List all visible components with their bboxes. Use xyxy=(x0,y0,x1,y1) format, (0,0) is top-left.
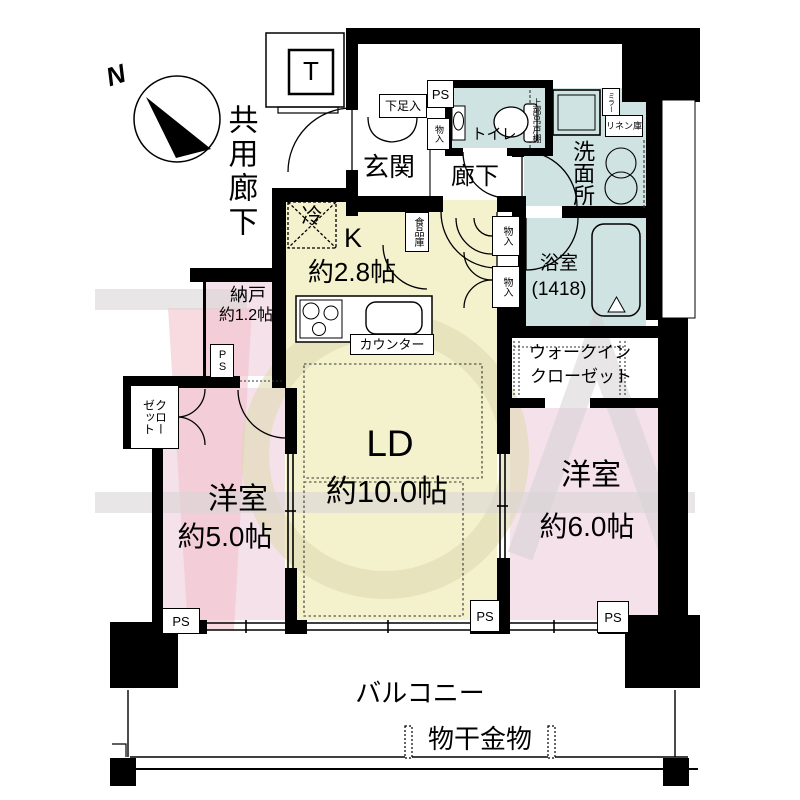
counter-label-box: カウンター xyxy=(350,334,434,355)
bedroom-west-size: 約5.0帖 xyxy=(164,522,286,551)
kitchen-storage-upper: 物入 xyxy=(492,216,520,256)
mirror-cabinet-label: 上部三面鏡収納 xyxy=(647,137,657,213)
entrance-door-arc xyxy=(288,108,352,172)
pipe-space-living: PS xyxy=(470,600,500,632)
washroom-door-arc xyxy=(522,151,577,206)
fridge-label: 冷 xyxy=(293,206,331,228)
wall-bottom-right-block xyxy=(625,615,700,688)
hall-kitchen-door-arc xyxy=(441,212,497,268)
entrance-label: 玄関 xyxy=(356,154,422,181)
bedroom-west-label: 洋室 xyxy=(194,484,282,516)
kitchen-storage-door xyxy=(456,218,492,254)
living-size: 約10.0帖 xyxy=(294,476,480,509)
drying-hardware-label: 物干金物 xyxy=(414,726,546,753)
shoe-box: 下足入 xyxy=(379,94,427,118)
kitchen-storage-door xyxy=(464,280,492,308)
closet-box: クロー ゼット xyxy=(130,385,179,449)
bedroom-east-label: 洋室 xyxy=(546,460,636,492)
storage-room-label: 納戸 xyxy=(220,286,276,305)
exterior-void-strip xyxy=(662,100,695,318)
kitchen-storage-door xyxy=(464,252,492,280)
shoe-cabinet-door xyxy=(392,117,417,142)
wic-label-line1: ウォークイン xyxy=(524,344,636,362)
hall-storage-box: 物入 xyxy=(427,118,450,150)
stove xyxy=(300,300,342,338)
mirror-box: ミラー xyxy=(602,88,620,116)
compass xyxy=(134,76,220,162)
pantry-box: 食品庫 xyxy=(405,212,429,252)
toilet-upper-cabinet-label: 上部吊戸棚 xyxy=(531,92,540,148)
pipe-space-bedroom-east: PS xyxy=(597,601,629,633)
toilet-label: トイレ xyxy=(466,127,522,143)
kitchen-storage-lower: 物入 xyxy=(492,266,520,308)
washroom-label: 洗面所 xyxy=(571,137,594,209)
wall-top-right-block xyxy=(622,28,700,102)
pipe-space-storage-room: PS xyxy=(210,344,234,378)
kitchen-label: K xyxy=(338,224,368,252)
bathroom-label: 浴室 xyxy=(528,254,590,274)
bedroom-east-size: 約6.0帖 xyxy=(518,512,656,541)
common-corridor-label: 共用廊下 xyxy=(224,92,256,252)
storage-room-size: 約1.2帖 xyxy=(210,308,282,325)
floor-plan: 下足入 PS 物入 ミラー リネン庫 食品庫 物入 物入 PS クロー ゼット … xyxy=(0,0,800,800)
wic-label-line2: クローゼット xyxy=(522,368,640,386)
shoe-cabinet-door xyxy=(368,117,392,142)
kitchen-storage-door xyxy=(474,218,492,236)
bathtub xyxy=(592,224,640,316)
hallway-label: 廊下 xyxy=(442,164,508,189)
kitchen-size: 約2.8帖 xyxy=(298,259,406,286)
living-label: LD xyxy=(350,425,430,464)
linen-box: リネン庫 xyxy=(605,115,643,137)
drying-hardware-left xyxy=(405,726,412,758)
bathroom-size: (1418) xyxy=(520,280,598,300)
compass-needle xyxy=(146,97,211,158)
balcony-label: バルコニー xyxy=(338,680,502,707)
drying-hardware-right xyxy=(548,726,555,758)
pipe-space-bedroom-west: PS xyxy=(162,608,200,634)
elevator-label: T xyxy=(296,58,326,85)
washing-machine-pan xyxy=(553,90,600,135)
vanity-basin xyxy=(605,148,637,204)
kitchen-sink xyxy=(366,302,422,334)
pipe-space-top: PS xyxy=(427,80,454,108)
